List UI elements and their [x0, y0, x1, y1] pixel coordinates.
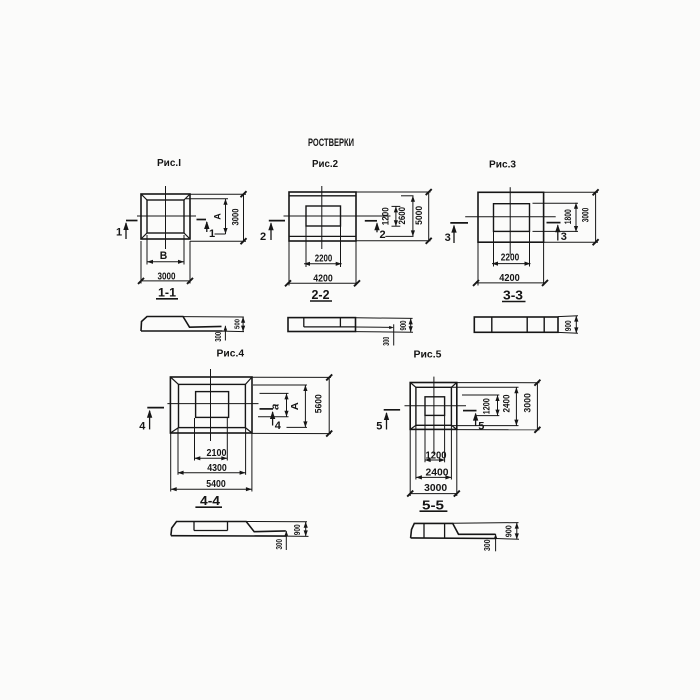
svg-text:A: A [212, 213, 222, 220]
svg-text:300: 300 [382, 336, 391, 345]
svg-text:a: a [269, 404, 281, 410]
svg-text:5-5: 5-5 [422, 497, 444, 512]
svg-text:4200: 4200 [313, 273, 333, 284]
svg-text:3-3: 3-3 [503, 288, 523, 302]
svg-text:5400: 5400 [206, 479, 226, 490]
svg-text:2200: 2200 [315, 254, 333, 265]
svg-text:Рис.3: Рис.3 [489, 159, 516, 171]
svg-text:4300: 4300 [207, 463, 227, 474]
svg-text:2-2: 2-2 [312, 288, 330, 302]
svg-text:2600: 2600 [397, 207, 408, 225]
svg-text:2: 2 [379, 229, 385, 241]
svg-text:3000: 3000 [581, 208, 591, 223]
svg-text:300: 300 [275, 539, 284, 550]
svg-text:2100: 2100 [207, 448, 227, 459]
svg-text:Рис.2: Рис.2 [312, 158, 338, 170]
svg-text:900: 900 [504, 525, 513, 537]
svg-text:500: 500 [232, 319, 241, 329]
svg-text:3000: 3000 [158, 272, 176, 283]
svg-text:1800: 1800 [563, 209, 574, 224]
svg-text:Рис.4: Рис.4 [217, 347, 245, 359]
svg-text:В: В [160, 250, 168, 262]
svg-text:3000: 3000 [424, 483, 447, 494]
svg-text:3000: 3000 [523, 393, 534, 413]
svg-text:900: 900 [564, 320, 573, 331]
svg-text:4: 4 [139, 420, 146, 432]
svg-text:5: 5 [376, 420, 382, 432]
svg-text:4: 4 [275, 420, 282, 432]
svg-text:Рис.5: Рис.5 [414, 348, 442, 360]
svg-text:3: 3 [561, 231, 567, 243]
svg-text:5000: 5000 [414, 206, 425, 225]
svg-text:1: 1 [209, 228, 215, 240]
svg-text:РОСТВЕРКИ: РОСТВЕРКИ [308, 137, 354, 149]
svg-text:A: A [290, 402, 301, 410]
svg-text:2200: 2200 [501, 253, 520, 264]
svg-text:3: 3 [445, 232, 451, 244]
svg-text:5: 5 [478, 421, 484, 433]
svg-text:5600: 5600 [314, 394, 325, 413]
svg-text:1200: 1200 [482, 398, 493, 414]
svg-text:300: 300 [214, 331, 223, 341]
svg-text:2400: 2400 [426, 468, 449, 479]
svg-text:2: 2 [260, 231, 266, 243]
svg-text:1: 1 [116, 227, 122, 239]
svg-text:3000: 3000 [230, 209, 241, 226]
svg-text:4-4: 4-4 [200, 494, 220, 508]
svg-text:900: 900 [399, 320, 408, 330]
svg-text:1-1: 1-1 [158, 288, 177, 300]
svg-text:1200: 1200 [380, 207, 391, 225]
svg-text:Рис.I: Рис.I [157, 157, 181, 169]
svg-text:1200: 1200 [426, 450, 447, 461]
svg-text:2400: 2400 [501, 395, 512, 413]
svg-text:300: 300 [483, 539, 492, 551]
svg-text:4200: 4200 [499, 273, 520, 284]
svg-text:900: 900 [293, 524, 302, 535]
